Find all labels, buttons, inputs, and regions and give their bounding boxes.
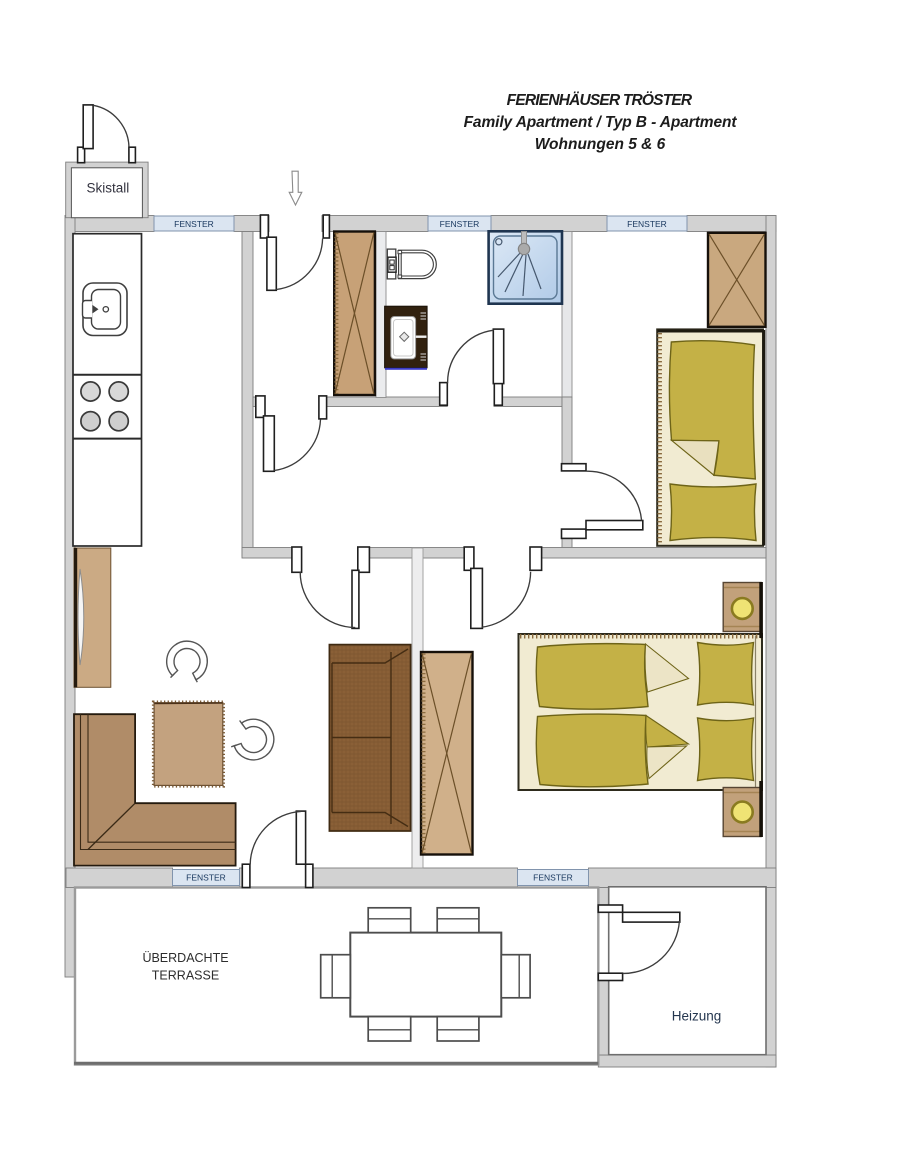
svg-text:FERIENHÄUSER TRÖSTER: FERIENHÄUSER TRÖSTER	[507, 92, 693, 109]
svg-text:Skistall: Skistall	[87, 181, 130, 196]
svg-text:FENSTER: FENSTER	[186, 873, 226, 883]
svg-text:Family Apartment / Typ B - Apa: Family Apartment / Typ B - Apartment	[464, 114, 738, 131]
svg-text:FENSTER: FENSTER	[440, 219, 480, 229]
svg-text:FENSTER: FENSTER	[627, 219, 667, 229]
svg-text:TERRASSE: TERRASSE	[152, 969, 219, 983]
svg-text:Wohnungen 5 & 6: Wohnungen 5 & 6	[535, 136, 666, 153]
svg-text:FENSTER: FENSTER	[174, 219, 214, 229]
svg-text:FENSTER: FENSTER	[533, 873, 573, 883]
svg-text:ÜBERDACHTE: ÜBERDACHTE	[142, 951, 228, 965]
svg-text:Heizung: Heizung	[672, 1009, 722, 1024]
